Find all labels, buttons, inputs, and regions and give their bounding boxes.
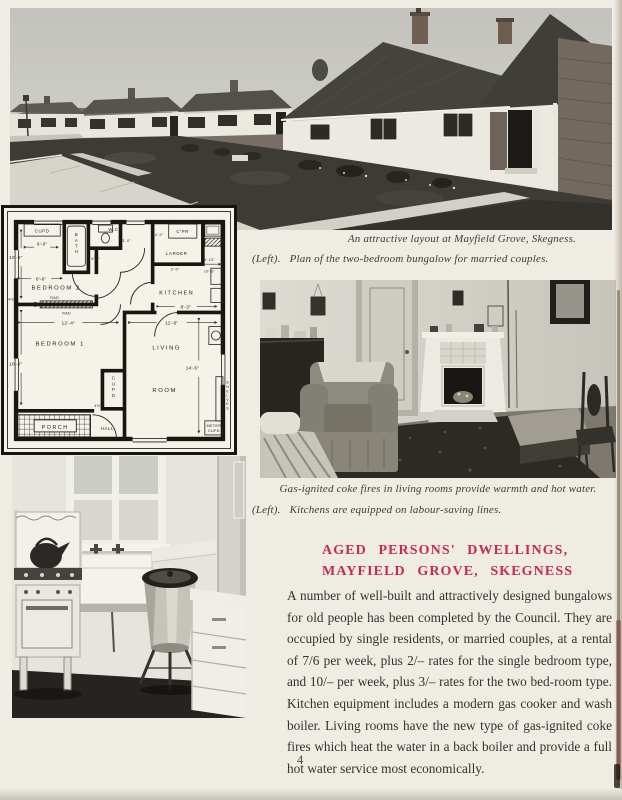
street-photo-caption: An attractive layout at Mayfield Grove, … (260, 233, 576, 245)
plan-caption: (Left).Plan of the two-bedroom bungalow … (252, 253, 549, 265)
floor-plan-drawing: BEDROOM 2 BEDROOM 1 LIVING ROOM KITCHEN … (4, 208, 234, 452)
plan-label-cupd-top: CUPD (35, 229, 50, 234)
scan-edge-mark (616, 620, 621, 780)
plan-label-rad2: RAD (62, 311, 71, 315)
living-room-photo (260, 280, 616, 478)
page-number: 4 (297, 753, 303, 768)
plan-label-living: LIVING (152, 346, 181, 352)
kitchen-photo (12, 456, 246, 718)
plan-dim-cupd: 6'-0" (37, 242, 48, 248)
cabinet (190, 588, 246, 718)
fireplace (420, 324, 506, 422)
plan-caption-text: Plan of the two-bedroom bungalow for mar… (290, 253, 549, 265)
plan-label-larder: LARDER (166, 251, 188, 256)
plan-fixtures (16, 224, 223, 437)
plan-label-shelves: SHELVES (225, 381, 229, 411)
plan-label-bedroom2: BEDROOM 2 (32, 285, 81, 291)
plan-dim-kitchen-depth: 5'-10" (204, 258, 216, 262)
plan-dim-wall2: 4½" (94, 404, 102, 408)
plan-label-meter1: METER (207, 424, 221, 428)
plan-dim-kitchen-d2: 10'-6" (204, 269, 216, 273)
plan-dim-bed1-width: 12'-4" (62, 320, 76, 326)
kettle (30, 543, 62, 569)
plan-label-bath: BATH (74, 232, 79, 255)
plan-label-room: ROOM (152, 388, 177, 394)
plan-label-cupd-closet: CUPD (111, 376, 116, 399)
plan-dim-bed2-depth: 10'-5" (9, 255, 23, 261)
plan-label-copper: C'PR (176, 229, 189, 234)
article-heading-line2: MAYFIELD GROVE, SKEGNESS (322, 564, 573, 579)
plan-dim-passage: 3'-0" (122, 239, 131, 243)
plan-dim-larder-w: 4'-2" (155, 233, 164, 237)
plan-label-porch: PORCH (42, 425, 69, 431)
article-heading-line1: AGED PERSONS' DWELLINGS, (322, 543, 568, 558)
article-body: A number of well-built and attractively … (287, 585, 612, 779)
plan-label-hall: HALL (101, 426, 115, 431)
article-heading: AGED PERSONS' DWELLINGS, MAYFIELD GROVE,… (322, 541, 573, 582)
floor-plan: BEDROOM 2 BEDROOM 1 LIVING ROOM KITCHEN … (1, 205, 237, 455)
scanned-page: BEDROOM 2 BEDROOM 1 LIVING ROOM KITCHEN … (0, 0, 622, 800)
plan-dim-living-depth: 14'-5" (186, 366, 200, 372)
plan-dim-kitchen-width: 8'-3" (180, 304, 191, 310)
plan-dim-bath: 6'-0" (91, 257, 100, 261)
plan-dim-living-width: 11'-8" (165, 320, 178, 326)
plan-text: BEDROOM 2 BEDROOM 1 LIVING ROOM KITCHEN … (8, 227, 229, 433)
plan-label-meter2: CUPD (208, 429, 220, 433)
plan-caption-prefix: (Left). (252, 253, 281, 265)
kitchen-caption: (Left).Kitchens are equipped on labour-s… (252, 504, 501, 516)
kitchen-caption-prefix: (Left). (252, 504, 281, 516)
side-window (234, 462, 244, 518)
living-photo-caption: Gas-ignited coke fires in living rooms p… (260, 483, 616, 495)
kitchen-caption-text: Kitchens are equipped on labour-saving l… (290, 504, 502, 516)
plan-label-rad1: RAD (50, 296, 59, 300)
plan-label-kitchen: KITCHEN (159, 290, 194, 296)
plan-dim-wall1: 4½" (8, 297, 16, 301)
plan-dim-bed1-depth: 10'-6" (9, 362, 23, 368)
pipe (508, 280, 509, 408)
scan-edge-bottom (0, 789, 622, 800)
plan-label-bedroom1: BEDROOM 1 (36, 342, 85, 348)
street-photo (10, 8, 612, 230)
plan-label-wc: W.C (108, 227, 118, 232)
plan-dim-bed2-width: 8'-6" (36, 276, 47, 282)
plan-walls (16, 222, 223, 439)
kitchen-illustration (12, 456, 246, 718)
street-photo-illustration (10, 8, 612, 230)
plan-dim-larder-d: 2'-0" (171, 267, 180, 271)
plan-dim-lines (20, 232, 221, 433)
scan-edge-blob (614, 764, 620, 788)
living-room-illustration (260, 280, 616, 478)
mirror (550, 280, 590, 324)
